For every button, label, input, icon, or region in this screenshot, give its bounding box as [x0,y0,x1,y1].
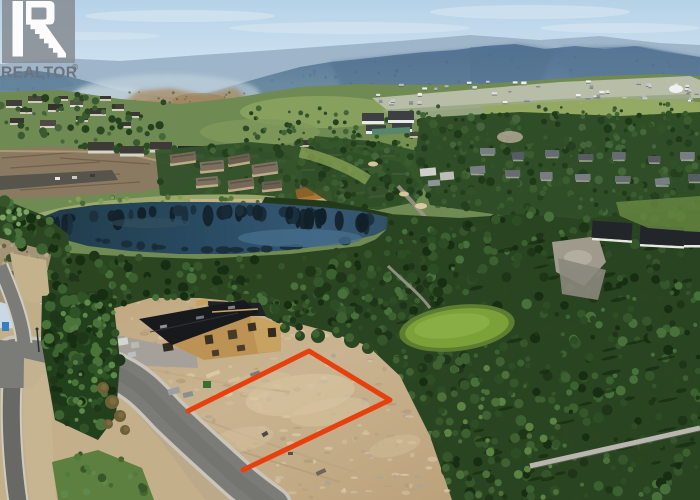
svg-text:®: ® [72,62,79,72]
svg-text:REALTOR: REALTOR [1,65,77,82]
